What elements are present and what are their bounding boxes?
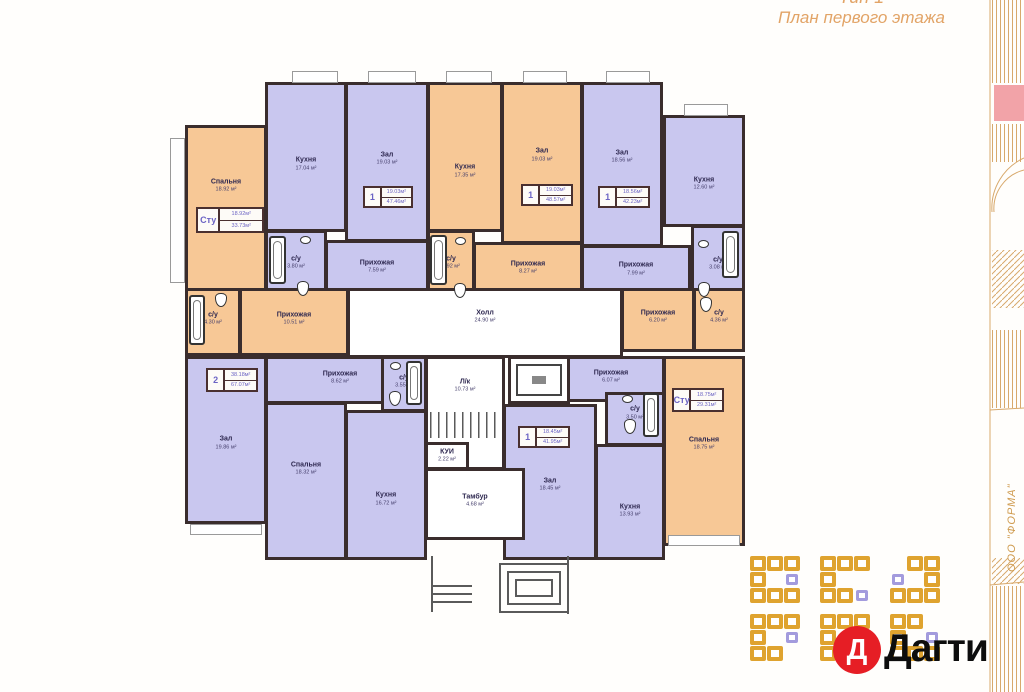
room-name-label: Кухня [348, 492, 424, 500]
room-area-label: 17.35 м² [430, 172, 500, 179]
logo-text: Дагти [884, 627, 988, 671]
room-name-label: Холл [350, 309, 620, 317]
unit-number-label: 1 [523, 186, 540, 204]
bathtub-icon [406, 361, 422, 405]
room-area-label: 19.03 м² [348, 160, 426, 167]
unit-info-box: 119.03м²48.57м² [521, 184, 573, 206]
window [684, 104, 728, 116]
room-area-label: 18.32 м² [268, 470, 344, 477]
room-area-label: 16.72 м² [348, 500, 424, 507]
unit-number-label: 1 [365, 188, 382, 206]
unit-area-label: 18.75м² [691, 390, 722, 401]
bathtub-icon [643, 393, 659, 437]
bathtub-icon [722, 231, 739, 278]
room-name-label: Зал [348, 151, 426, 159]
sink-icon [390, 362, 401, 370]
logo-mark: Д [833, 626, 881, 674]
room-area-label: 8.27 м² [476, 269, 580, 276]
room-area-label: 12.60 м² [666, 185, 742, 192]
room-name-label: Прихожая [242, 311, 346, 319]
window [606, 71, 650, 83]
room-name-label: Спальня [666, 436, 742, 444]
unit-area-label: 41.95м² [537, 438, 568, 447]
room: Спальня18.75 м² [663, 356, 745, 546]
unit-area-label: 19.03м² [382, 188, 411, 198]
room: Кухня17.04 м² [265, 82, 347, 232]
unit-area-label: 18.92м² [220, 209, 262, 221]
sink-icon [622, 395, 633, 403]
unit-area-label: 38.18м² [225, 370, 256, 381]
unit-info-box: 238.18м²67.07м² [206, 368, 258, 392]
entrance-steps-icon [425, 556, 575, 620]
logo-letter: Д [847, 634, 868, 667]
unit-area-label: 48.57м² [540, 196, 571, 205]
unit-number-label: Сту [198, 209, 220, 231]
unit-number-label: 2 [208, 370, 225, 390]
sink-icon [300, 236, 311, 244]
sink-icon [455, 237, 466, 245]
room-area-label: 4.68 м² [428, 502, 522, 509]
room: Зал18.56 м² [581, 82, 663, 247]
unit-area-label: 33.73м² [220, 221, 262, 232]
room: Кухня16.72 м² [345, 410, 427, 560]
window [190, 524, 262, 535]
room-name-label: Кухня [598, 503, 662, 511]
room-area-label: 19.86 м² [188, 444, 264, 451]
unit-area-label: 19.03м² [540, 186, 571, 196]
room-area-label: 17.04 м² [268, 165, 344, 172]
bathtub-icon [430, 235, 447, 285]
room-name-label: КУИ [428, 449, 466, 457]
unit-area-label: 18.45м² [537, 428, 568, 438]
staircase-icon [430, 412, 500, 438]
unit-number-label: 1 [600, 188, 617, 206]
room-area-label: 6.07 м² [560, 378, 662, 385]
room-area-label: 24.90 м² [350, 317, 620, 324]
logo-building-block-icon [750, 556, 802, 606]
company-name-label: ООО "ФОРМА" [1006, 412, 1018, 572]
room: Прихожая6.20 м² [621, 288, 695, 352]
room-name-label: Спальня [188, 179, 264, 187]
room-name-label: Кухня [268, 157, 344, 165]
room-area-label: 2.22 м² [428, 457, 466, 464]
room-name-label: Зал [584, 149, 660, 157]
unit-area-label: 67.07м² [225, 381, 256, 391]
room-area-label: 18.92 м² [188, 187, 264, 194]
unit-area-label: 18.56м² [617, 188, 648, 198]
window [446, 71, 492, 83]
unit-area-label: 47.46м² [382, 198, 411, 207]
room-name-label: Прихожая [476, 260, 580, 268]
unit-info-box: 119.03м²47.46м² [363, 186, 413, 208]
unit-number-label: 1 [520, 428, 537, 446]
drawing-frame-decoration [960, 0, 1024, 692]
room-area-label: 18.56 м² [584, 157, 660, 164]
elevator-shaft-icon [508, 356, 570, 404]
room: Зал19.03 м² [345, 82, 429, 242]
room-area-label: 7.59 м² [328, 267, 426, 274]
logo-building-block-icon [890, 556, 942, 606]
unit-area-label: 29.31м² [691, 401, 722, 411]
room-name-label: Прихожая [328, 259, 426, 267]
room: Спальня18.32 м² [265, 402, 347, 560]
window [523, 71, 567, 83]
unit-info-box: 118.45м²41.95м² [518, 426, 570, 448]
room-area-label: 10.73 м² [428, 387, 502, 394]
room-name-label: Кухня [666, 176, 742, 184]
room-area-label: 7.99 м² [584, 270, 688, 277]
unit-info-box: Сту18.92м²33.73м² [196, 207, 264, 233]
window [368, 71, 416, 83]
room-name-label: Зал [504, 148, 580, 156]
room-area-label: 4.36 м² [696, 318, 742, 325]
room-name-label: Тамбур [428, 493, 522, 501]
logo-building-block-icon [750, 614, 802, 664]
room-name-label: Прихожая [624, 310, 692, 318]
room-name-label: Л/к [428, 379, 502, 387]
room: КУИ2.22 м² [425, 442, 469, 470]
room-name-label: Кухня [430, 164, 500, 172]
room: Прихожая10.51 м² [239, 288, 349, 356]
room-area-label: 18.75 м² [666, 445, 742, 452]
bathtub-icon [189, 295, 205, 345]
room-name-label: Прихожая [560, 370, 662, 378]
sink-icon [698, 240, 709, 248]
room-name-label: Спальня [268, 461, 344, 469]
room: Кухня17.35 м² [427, 82, 503, 232]
bathtub-icon [269, 236, 286, 284]
room-area-label: 6.20 м² [624, 318, 692, 325]
room: Тамбур4.68 м² [425, 468, 525, 540]
room-area-label: 13.93 м² [598, 512, 662, 519]
room: Кухня12.60 м² [663, 115, 745, 227]
room-name-label: Прихожая [584, 262, 688, 270]
unit-area-label: 42.23м² [617, 198, 648, 207]
room-name-label: Зал [188, 436, 264, 444]
window [292, 71, 338, 83]
logo-building-block-icon [820, 556, 872, 606]
unit-info-box: 118.56м²42.23м² [598, 186, 650, 208]
unit-info-box: Сту18.75м²29.31м² [672, 388, 724, 412]
room: Зал19.03 м² [501, 82, 583, 244]
unit-number-label: Сту [674, 390, 691, 410]
window [170, 138, 185, 283]
room-area-label: 10.51 м² [242, 320, 346, 327]
room: Холл24.90 м² [347, 288, 623, 358]
room-area-label: 19.03 м² [504, 156, 580, 163]
screenshot-root: Тип 1 План первого этажа Спальня18.92 м²… [0, 0, 1024, 692]
window [668, 535, 740, 546]
room: Кухня13.93 м² [595, 444, 665, 560]
